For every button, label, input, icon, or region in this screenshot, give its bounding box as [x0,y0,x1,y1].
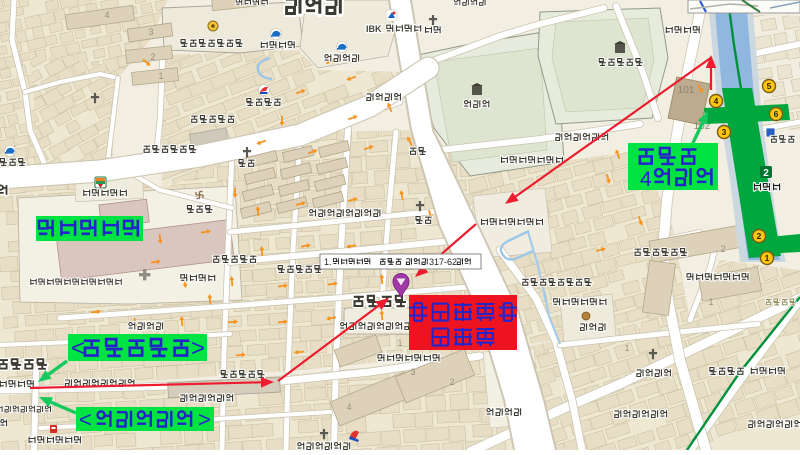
svg-text:1: 1 [397,338,402,348]
svg-text:4: 4 [104,10,109,20]
svg-text:4: 4 [714,96,719,106]
svg-text:2: 2 [150,52,155,62]
svg-text:>: > [191,335,205,362]
svg-text:>: > [198,407,211,432]
svg-text:4: 4 [640,168,652,191]
svg-text:1: 1 [624,343,629,353]
svg-text:4: 4 [346,402,351,412]
svg-text:3: 3 [148,27,153,37]
svg-text:317-62: 317-62 [429,257,457,267]
svg-text:2: 2 [757,231,762,241]
svg-text:1.: 1. [324,257,332,267]
svg-text:6: 6 [774,109,779,119]
svg-text:1: 1 [765,253,770,263]
svg-text:1: 1 [158,71,163,81]
svg-text:<: < [71,335,85,362]
svg-text:1: 1 [708,297,713,307]
svg-text:2: 2 [763,168,769,179]
svg-text:3: 3 [410,367,415,377]
svg-text:2: 2 [449,377,454,387]
svg-text:3: 3 [722,127,727,137]
svg-text:101: 101 [678,85,695,96]
svg-text:5: 5 [767,81,772,91]
svg-text:IBK: IBK [366,24,382,34]
svg-text:<: < [79,407,92,432]
svg-text:2: 2 [720,244,725,254]
